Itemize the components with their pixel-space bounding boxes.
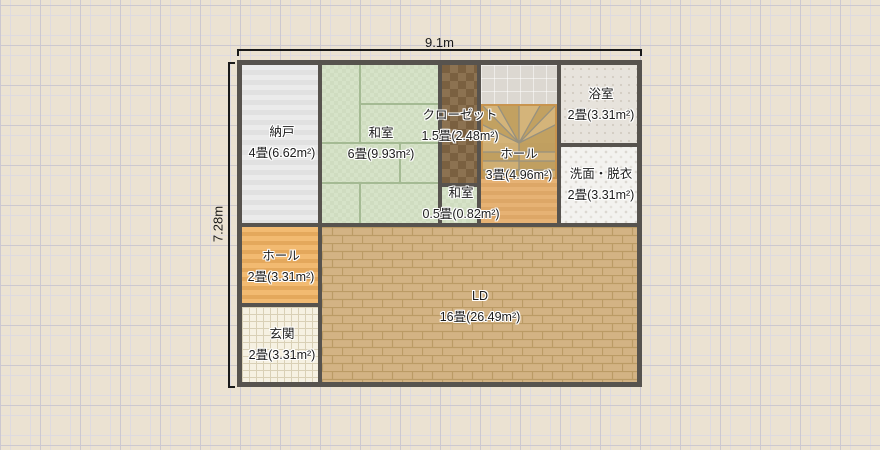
wall: [561, 143, 637, 147]
floor-plan-canvas: 9.1m 7.28m: [0, 0, 880, 450]
wall: [242, 303, 318, 307]
room-label-washitsu-6: 和室 6畳(9.93m²): [348, 123, 415, 165]
dimension-width-label: 9.1m: [237, 35, 642, 50]
room-label-closet: クローゼット 1.5畳(2.48m²): [421, 105, 498, 147]
room-label-hall-entrance: ホール 2畳(3.31m²): [248, 246, 315, 288]
room-label-nando: 納戸 4畳(6.62m²): [249, 122, 316, 164]
dimension-width-line: [237, 49, 642, 56]
room-hall-landing[interactable]: [481, 65, 557, 104]
room-label-bathroom: 浴室 2畳(3.31m²): [568, 84, 635, 126]
room-label-washroom: 洗面・脱衣 2畳(3.31m²): [568, 164, 635, 206]
dimension-height-line: [228, 62, 235, 388]
room-label-genkan: 玄関 2畳(3.31m²): [249, 324, 316, 366]
dimension-height-label: 7.28m: [211, 206, 226, 242]
floor-plan: 納戸 4畳(6.62m²) 和室 6畳(9.93m²) クローゼット 1.5畳(…: [237, 60, 642, 387]
room-label-washitsu-05: 和室 0.5畳(0.82m²): [422, 183, 499, 225]
room-label-ld: LD 16畳(26.49m²): [440, 286, 521, 328]
room-label-hall-stairs: ホール 3畳(4.96m²): [486, 144, 553, 186]
